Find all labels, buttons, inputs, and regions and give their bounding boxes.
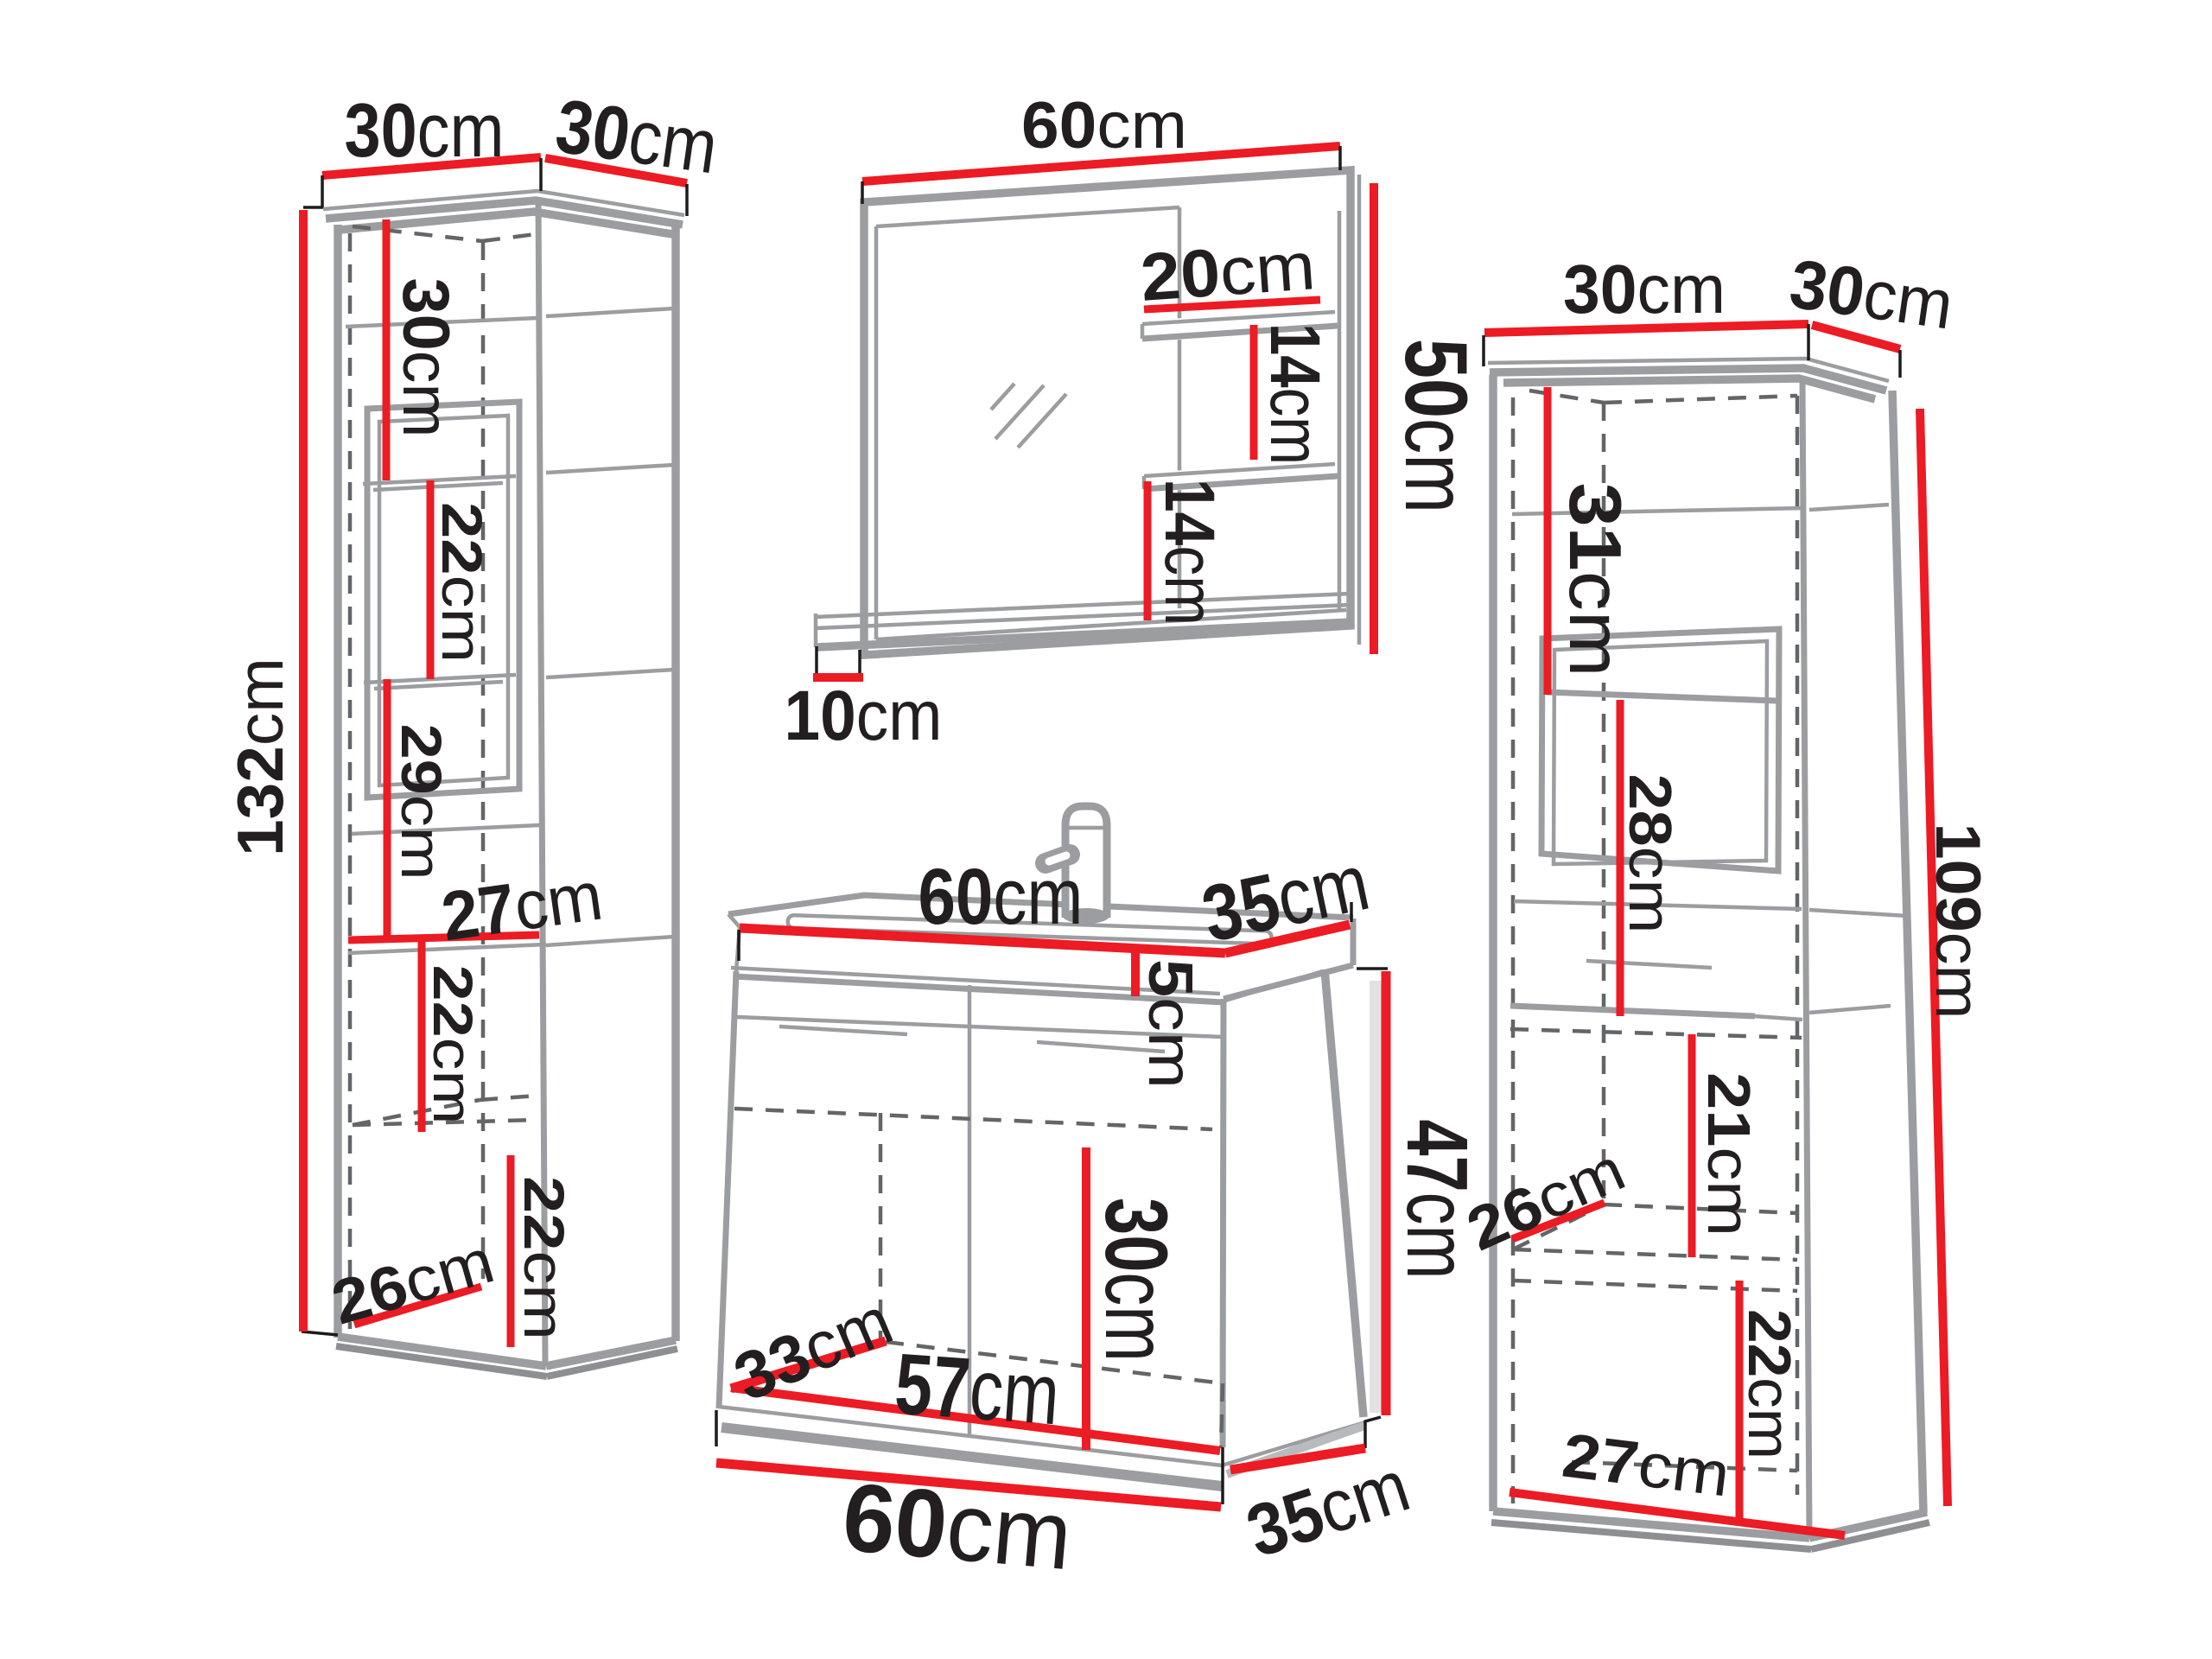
svg-text:57cm: 57cm	[892, 1336, 1062, 1444]
svg-text:22cm: 22cm	[430, 502, 494, 663]
svg-text:50cm: 50cm	[1387, 339, 1485, 513]
svg-text:14cm: 14cm	[1151, 479, 1230, 626]
svg-text:30cm: 30cm	[1087, 1198, 1185, 1362]
svg-text:22cm: 22cm	[422, 965, 484, 1125]
svg-text:28cm: 28cm	[1617, 774, 1684, 934]
svg-text:60cm: 60cm	[1021, 89, 1187, 162]
svg-text:30cm: 30cm	[390, 278, 463, 438]
svg-text:31cm: 31cm	[1554, 483, 1637, 677]
svg-text:30cm: 30cm	[1563, 251, 1726, 327]
svg-text:30cm: 30cm	[345, 87, 505, 173]
svg-text:14cm: 14cm	[1256, 323, 1335, 465]
svg-text:60cm: 60cm	[839, 1462, 1077, 1590]
svg-text:5cm: 5cm	[1135, 959, 1205, 1089]
svg-text:21cm: 21cm	[1695, 1072, 1763, 1236]
svg-text:20cm: 20cm	[1138, 227, 1318, 315]
svg-text:29cm: 29cm	[390, 724, 454, 880]
svg-text:109cm: 109cm	[1923, 823, 1993, 1020]
svg-text:22cm: 22cm	[1736, 1309, 1803, 1459]
svg-text:10cm: 10cm	[785, 677, 943, 755]
svg-text:22cm: 22cm	[512, 1176, 576, 1340]
svg-text:132cm: 132cm	[224, 658, 296, 856]
svg-text:60cm: 60cm	[918, 853, 1084, 941]
